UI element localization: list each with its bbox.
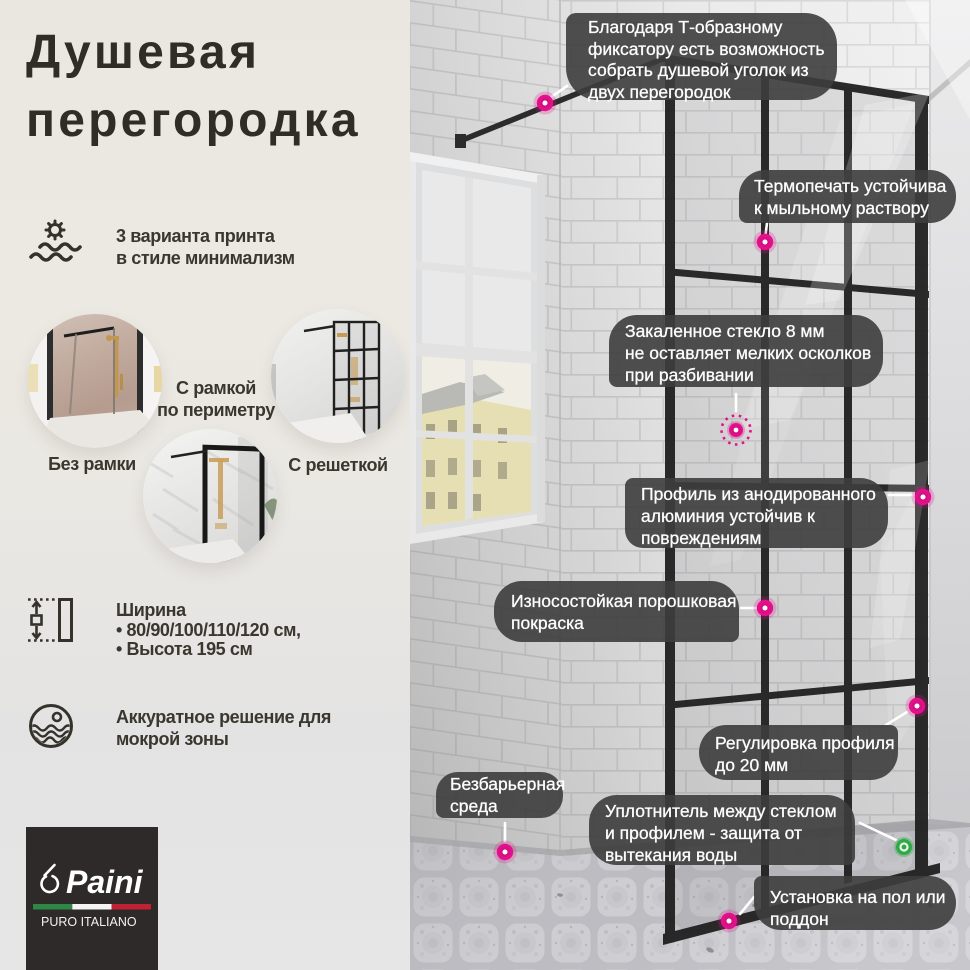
svg-text:PURO ITALIANO: PURO ITALIANO	[41, 915, 137, 929]
svg-text:Paini: Paini	[66, 864, 144, 900]
